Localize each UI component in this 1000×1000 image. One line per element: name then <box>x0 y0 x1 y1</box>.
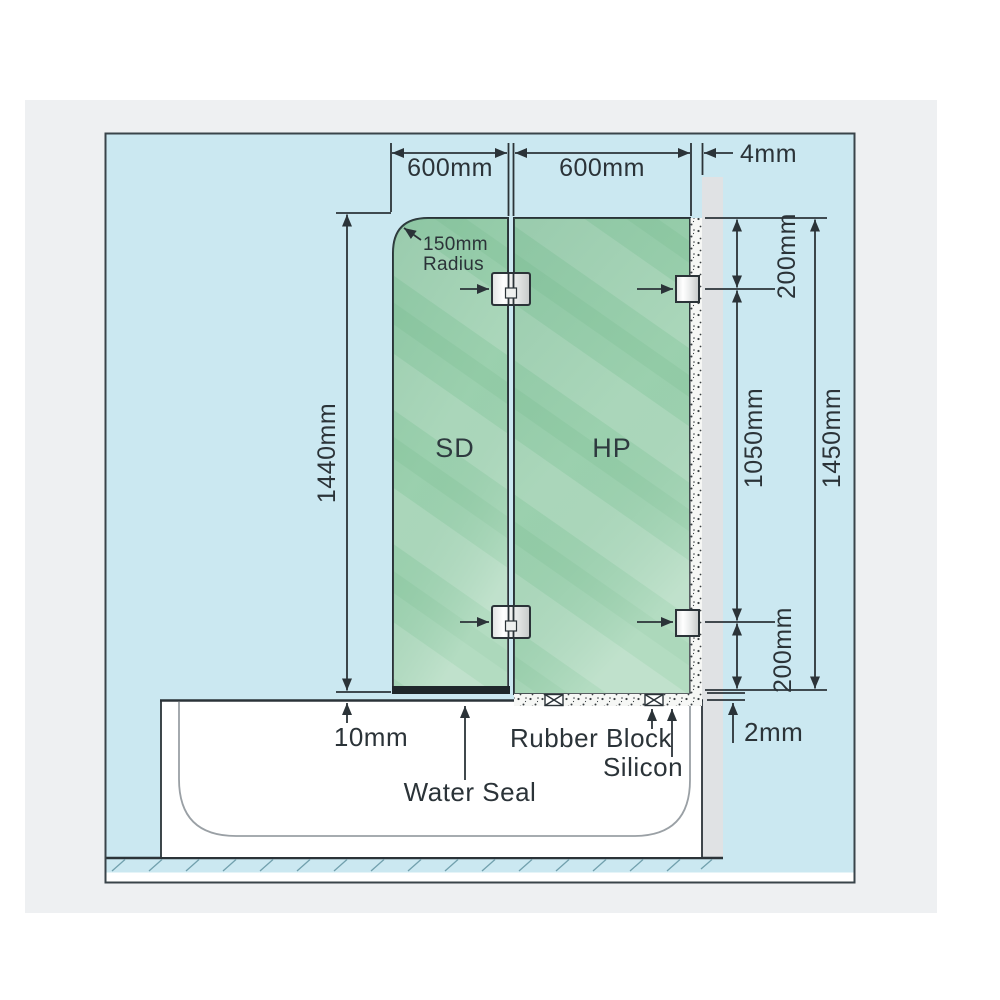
radius-label-line2: Radius <box>423 254 484 275</box>
top-bracket-offset-label: 200mm <box>773 213 801 299</box>
hp-width-label: 600mm <box>559 154 645 182</box>
wall-bracket-bottom <box>676 610 699 636</box>
sd-panel-label: SD <box>435 433 475 463</box>
silicon-label: Silicon <box>603 752 683 782</box>
water-seal-strip <box>392 686 510 694</box>
bracket-spacing-label: 1050mm <box>740 388 768 488</box>
tub-gap-label: 10mm <box>334 722 408 752</box>
panel-height-label: 1440mm <box>313 403 341 503</box>
overall-height-label: 1450mm <box>818 388 846 488</box>
water-seal-label: Water Seal <box>404 777 537 807</box>
sd-width-label: 600mm <box>407 154 493 182</box>
wall-gap-label: 4mm <box>740 140 797 168</box>
radius-label-line1: 150mm <box>423 234 488 255</box>
hp-panel-label: HP <box>592 433 632 463</box>
rubber-block-label: Rubber Block <box>510 723 673 753</box>
floor-gap-label: 2mm <box>744 717 803 747</box>
wall-strip <box>702 177 723 858</box>
silicon-bead-bottom <box>514 694 702 706</box>
screenshot-root: SD HP 600 <box>0 0 1000 1000</box>
wall-bracket-top <box>676 276 699 302</box>
bottom-bracket-offset-label: 200mm <box>769 607 797 693</box>
below-floor-strip <box>106 873 854 883</box>
installation-diagram: SD HP 600 <box>0 0 1000 1000</box>
